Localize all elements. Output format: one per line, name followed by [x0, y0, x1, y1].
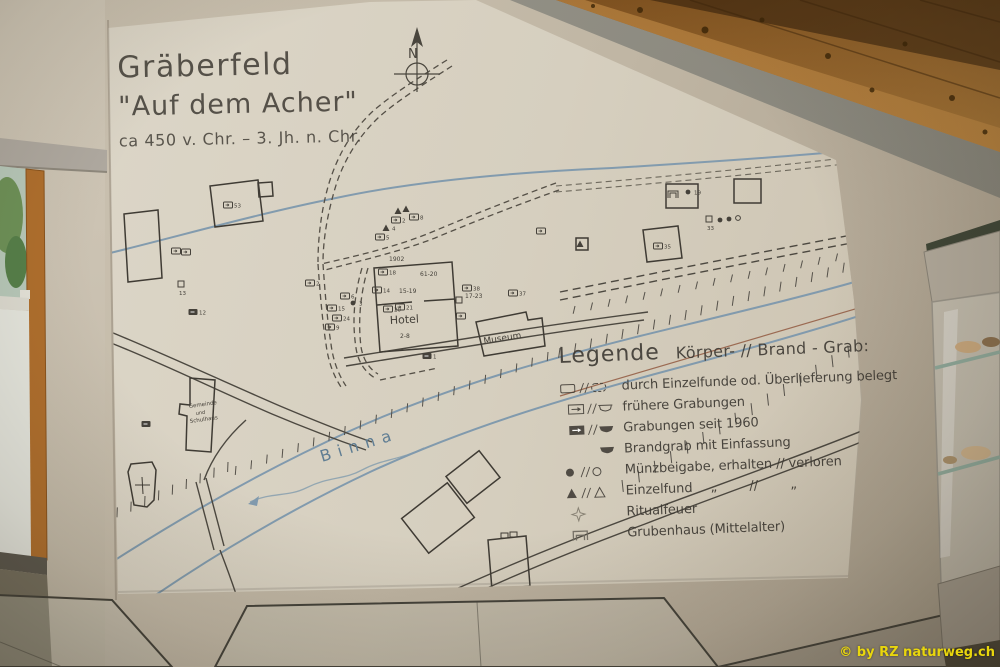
- display-case-center: [215, 598, 718, 667]
- artifact: [961, 446, 991, 460]
- foliage-through-window: [5, 236, 27, 288]
- wood-knots: [591, 4, 988, 135]
- wood-seams: [690, 0, 1000, 98]
- room-scene: [0, 0, 1000, 667]
- artifact: [955, 341, 981, 353]
- wall-corner-edge: [108, 20, 116, 600]
- window-crossbar: [0, 296, 29, 311]
- artifact: [943, 456, 957, 464]
- window: [0, 138, 107, 667]
- display-case-left: [0, 595, 172, 667]
- window-glass-lower: [0, 309, 31, 556]
- vitrine-right: [924, 220, 1000, 667]
- artifact: [982, 337, 1000, 347]
- watermark-credit: © by RZ naturweg.ch: [839, 645, 995, 660]
